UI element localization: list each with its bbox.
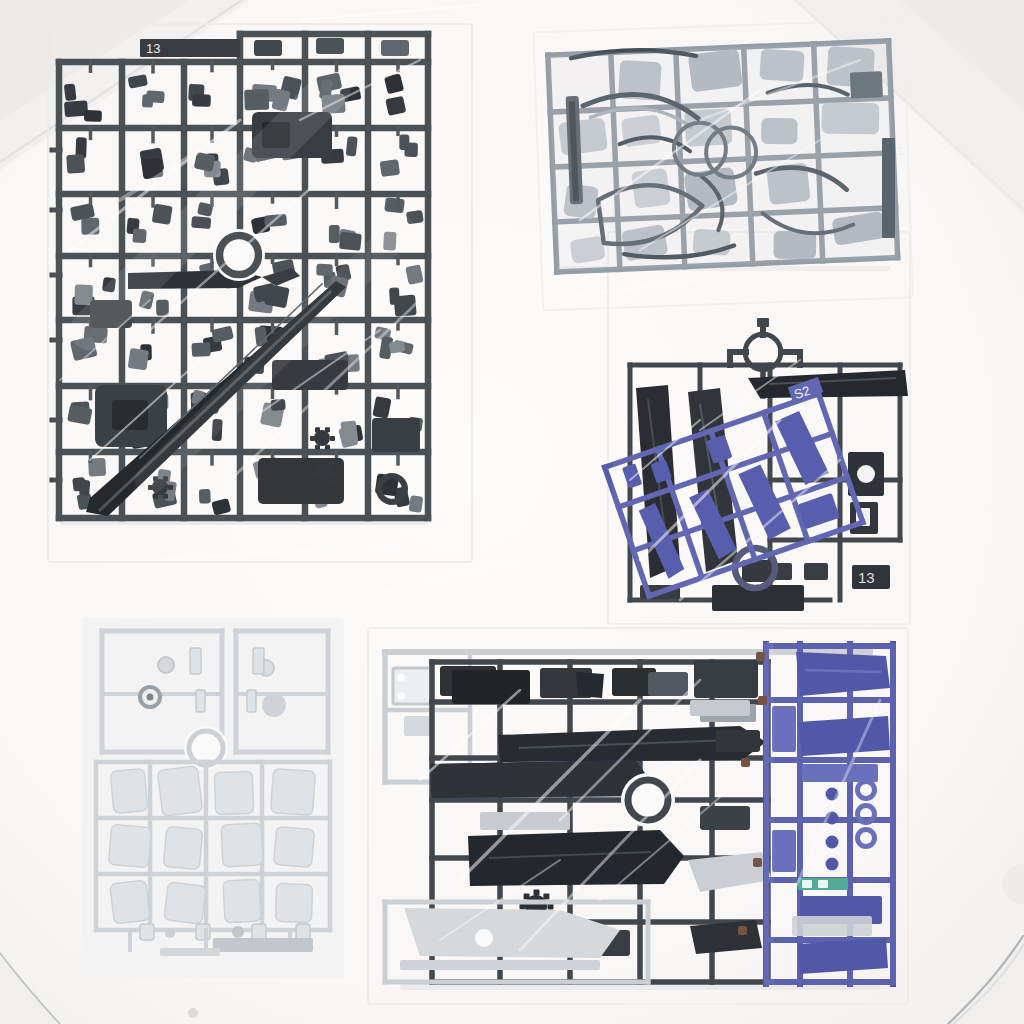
svg-text:H: H xyxy=(893,146,908,155)
